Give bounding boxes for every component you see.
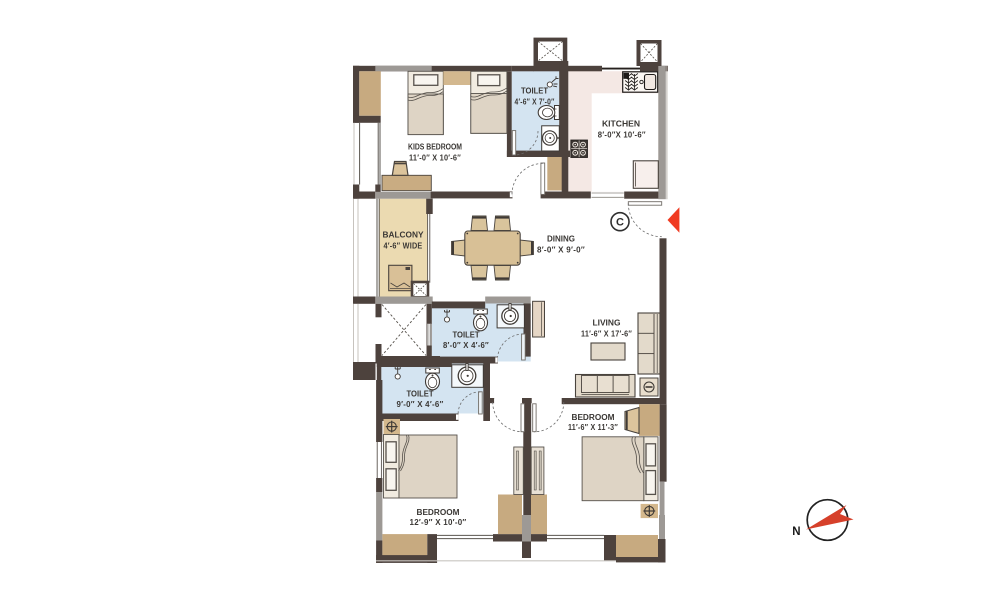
svg-text:12′-9″ X 10′-0″: 12′-9″ X 10′-0″: [410, 518, 467, 527]
svg-text:11′-6″ X 17′-6″: 11′-6″ X 17′-6″: [581, 330, 632, 339]
svg-text:9′-0″ X 4′-6″: 9′-0″ X 4′-6″: [397, 400, 444, 409]
svg-text:4′-6″ X 7′-0″: 4′-6″ X 7′-0″: [515, 97, 555, 106]
svg-text:4′-6″ WIDE: 4′-6″ WIDE: [384, 242, 423, 251]
svg-text:KITCHEN: KITCHEN: [602, 120, 640, 129]
svg-text:8′-0″ X 4′-6″: 8′-0″ X 4′-6″: [443, 341, 489, 350]
svg-text:KIDS BEDROOM: KIDS BEDROOM: [408, 143, 462, 152]
svg-text:8′-0″ X 9′-0″: 8′-0″ X 9′-0″: [537, 246, 585, 255]
svg-text:8′-0″X 10′-6″: 8′-0″X 10′-6″: [598, 131, 646, 140]
svg-text:C: C: [616, 217, 624, 229]
svg-text:TOILET: TOILET: [407, 390, 434, 399]
svg-text:11′-0″ X 10′-6″: 11′-0″ X 10′-6″: [409, 154, 461, 163]
svg-text:BEDROOM: BEDROOM: [572, 413, 615, 422]
svg-text:N: N: [792, 526, 801, 538]
svg-text:TOILET: TOILET: [453, 331, 480, 340]
svg-text:BEDROOM: BEDROOM: [417, 508, 460, 517]
svg-text:LIVING: LIVING: [593, 319, 621, 328]
svg-text:11′-6″ X 11′-3″: 11′-6″ X 11′-3″: [568, 423, 618, 432]
svg-text:DINING: DINING: [547, 235, 575, 244]
svg-text:BALCONY: BALCONY: [383, 231, 425, 240]
svg-text:TOILET: TOILET: [521, 86, 548, 95]
